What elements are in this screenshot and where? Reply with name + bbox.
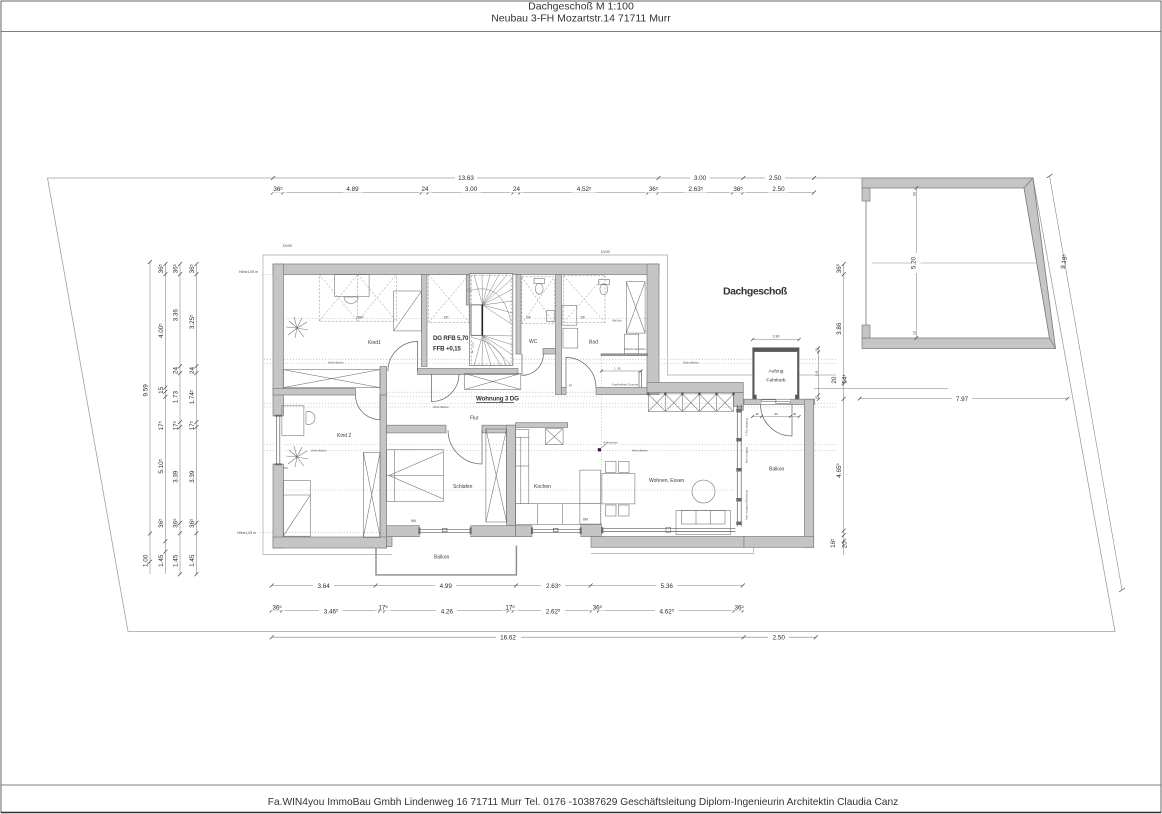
- svg-text:5.20: 5.20: [911, 256, 918, 269]
- svg-text:20: 20: [842, 541, 849, 549]
- svg-text:16.62: 16.62: [500, 635, 516, 642]
- svg-text:Wa.Ma: Wa.Ma: [612, 319, 622, 323]
- svg-text:DF: DF: [444, 316, 449, 320]
- svg-text:Dachgeschoß: Dachgeschoß: [723, 286, 788, 298]
- svg-text:1.90: 1.90: [773, 335, 780, 339]
- svg-text:2.50: 2.50: [769, 175, 782, 182]
- svg-text:20: 20: [815, 396, 819, 400]
- svg-text:1.73: 1.73: [173, 390, 180, 403]
- svg-text:4: 4: [472, 350, 474, 354]
- svg-text:20: 20: [815, 348, 819, 352]
- svg-text:7.97: 7.97: [956, 396, 969, 403]
- svg-text:1.45: 1.45: [158, 554, 165, 567]
- svg-text:Balkon: Balkon: [434, 555, 450, 561]
- svg-text:3.86: 3.86: [836, 322, 843, 335]
- svg-text:3.00: 3.00: [465, 186, 478, 193]
- svg-text:12: 12: [913, 331, 917, 335]
- svg-text:90: 90: [774, 412, 778, 416]
- svg-text:20: 20: [913, 192, 917, 196]
- svg-text:Waschmaschine: Waschmaschine: [624, 347, 646, 351]
- svg-text:13.63: 13.63: [458, 175, 474, 182]
- svg-text:24: 24: [189, 367, 196, 375]
- svg-text:6M: 6M: [583, 518, 588, 522]
- svg-text:1.00: 1.00: [143, 554, 150, 567]
- svg-text:Aufzug: Aufzug: [769, 369, 784, 375]
- svg-text:Flur: Flur: [470, 416, 479, 422]
- svg-text:3.39: 3.39: [189, 470, 196, 483]
- svg-text:2.50: 2.50: [772, 186, 785, 193]
- svg-text:3.64: 3.64: [317, 583, 330, 590]
- svg-text:1.42: 1.42: [815, 370, 819, 376]
- svg-text:4.89: 4.89: [346, 186, 359, 193]
- svg-text:4.26: 4.26: [441, 608, 454, 615]
- svg-text:Wohnen, Essen: Wohnen, Essen: [649, 478, 684, 484]
- svg-text:fest verglast Brüstung: fest verglast Brüstung: [745, 490, 749, 519]
- svg-text:DV30: DV30: [283, 244, 292, 248]
- svg-text:6M: 6M: [411, 519, 416, 523]
- svg-text:24: 24: [513, 186, 521, 193]
- svg-text:3.39: 3.39: [173, 470, 180, 483]
- svg-text:Wohnfläche: Wohnfläche: [632, 449, 648, 453]
- svg-text:Kind1: Kind1: [368, 340, 381, 346]
- svg-text:24: 24: [173, 367, 180, 375]
- svg-text:1.45: 1.45: [189, 554, 196, 567]
- svg-text:Kind 2: Kind 2: [337, 433, 351, 439]
- svg-text:Kochen: Kochen: [534, 484, 551, 490]
- svg-text:1. 95: 1. 95: [614, 367, 621, 371]
- svg-text:1.45: 1.45: [173, 554, 180, 567]
- svg-text:2/DF: 2/DF: [356, 316, 364, 320]
- svg-text:Balkon: Balkon: [769, 467, 785, 473]
- svg-text:fest verglast: fest verglast: [745, 447, 749, 463]
- svg-text:Dachgeschoß M 1:100: Dachgeschoß M 1:100: [528, 1, 634, 13]
- svg-text:DG RFB 5,70: DG RFB 5,70: [433, 335, 469, 342]
- svg-text:Neubau 3-FH Mozartstr.14 71711: Neubau 3-FH Mozartstr.14 71711 Murr: [491, 13, 671, 25]
- svg-text:Bad: Bad: [589, 340, 598, 346]
- svg-text:24: 24: [421, 186, 429, 193]
- svg-text:DV30: DV30: [601, 250, 610, 254]
- svg-text:DF: DF: [581, 316, 586, 320]
- svg-text:WC: WC: [529, 339, 538, 345]
- svg-text:5.36: 5.36: [661, 583, 674, 590]
- svg-text:Wohnung 3 DG: Wohnung 3 DG: [476, 396, 519, 403]
- svg-text:Fa.WIN4you ImmoBau Gmbh Linden: Fa.WIN4you ImmoBau Gmbh Lindenweg 16 717…: [268, 797, 898, 808]
- svg-text:Höhe1,05 m: Höhe1,05 m: [239, 270, 258, 274]
- svg-text:20: 20: [831, 376, 838, 384]
- svg-text:Kopffreiheit Dusche: Kopffreiheit Dusche: [612, 383, 638, 387]
- svg-text:6M: 6M: [284, 466, 289, 470]
- svg-text:3.00: 3.00: [694, 175, 707, 182]
- svg-text:Wohnfläche: Wohnfläche: [433, 405, 449, 409]
- svg-text:15: 15: [158, 386, 165, 394]
- svg-text:4.99: 4.99: [440, 583, 453, 590]
- svg-text:Höhe1,05 m: Höhe1,05 m: [237, 531, 256, 535]
- svg-text:9.59: 9.59: [143, 384, 150, 397]
- svg-text:DF: DF: [527, 316, 532, 320]
- svg-text:2.Flü.abgeng: 2.Flü.abgeng: [745, 418, 749, 436]
- svg-text:36: 36: [793, 412, 797, 416]
- svg-text:Wohnfläche: Wohnfläche: [311, 449, 327, 453]
- svg-text:Stahlstütze: Stahlstütze: [603, 441, 618, 445]
- svg-text:Wohnfläche: Wohnfläche: [683, 361, 699, 365]
- svg-text:36: 36: [755, 412, 759, 416]
- svg-text:3.36: 3.36: [173, 309, 180, 322]
- svg-text:Fahrkorb: Fahrkorb: [766, 378, 786, 384]
- svg-text:2.50: 2.50: [773, 635, 786, 642]
- svg-text:Wohnfläche: Wohnfläche: [328, 361, 344, 365]
- svg-text:FFB +0,15: FFB +0,15: [433, 346, 461, 353]
- svg-text:Schlafen: Schlafen: [453, 484, 473, 490]
